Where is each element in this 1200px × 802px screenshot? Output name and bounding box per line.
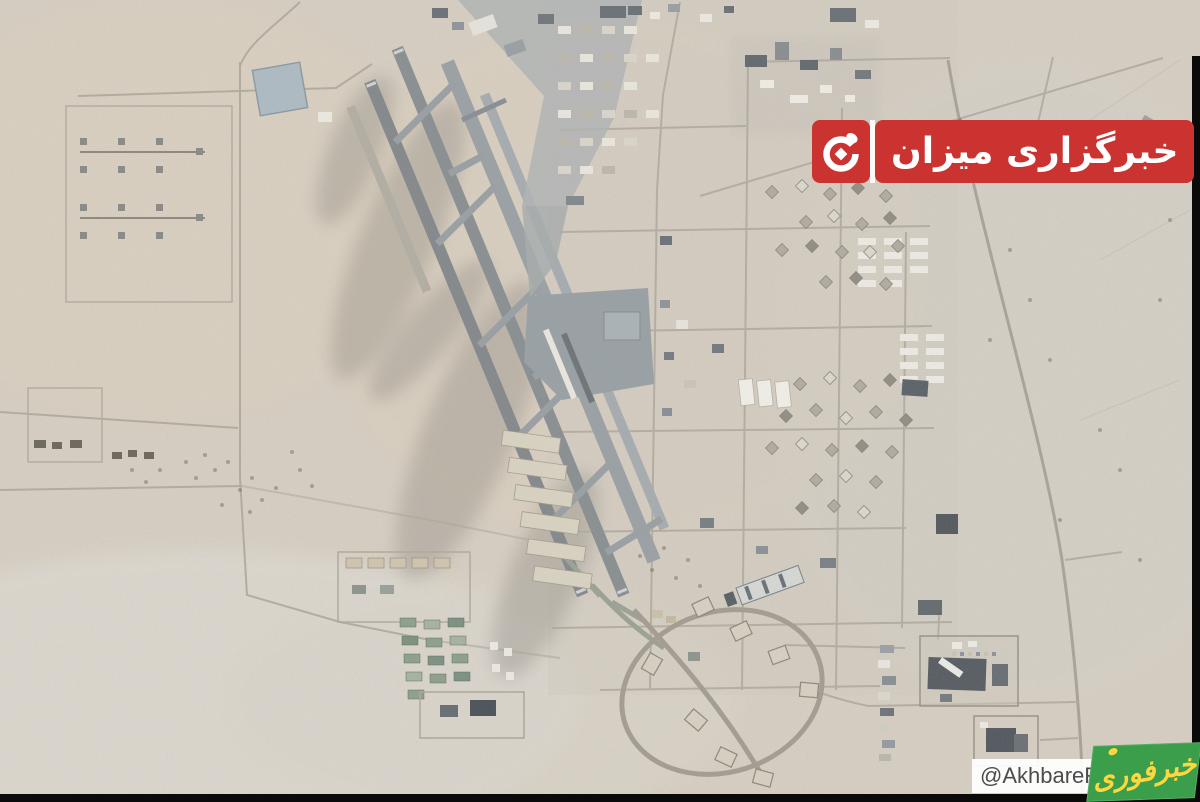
logo-dot xyxy=(1108,747,1118,757)
logo-calligraphy: خبرفوری xyxy=(1090,750,1198,794)
news-agency-name: خبرگزاری میزان xyxy=(875,120,1194,183)
khabarfori-logo: خبرفوری xyxy=(1086,742,1200,802)
mizan-logo-icon xyxy=(812,120,870,183)
video-frame: خبرگزاری میزان @AkhbareFori خبرفوری xyxy=(0,0,1200,802)
letterbox-bottom xyxy=(0,794,1200,802)
news-agency-banner: خبرگزاری میزان xyxy=(812,120,1194,183)
